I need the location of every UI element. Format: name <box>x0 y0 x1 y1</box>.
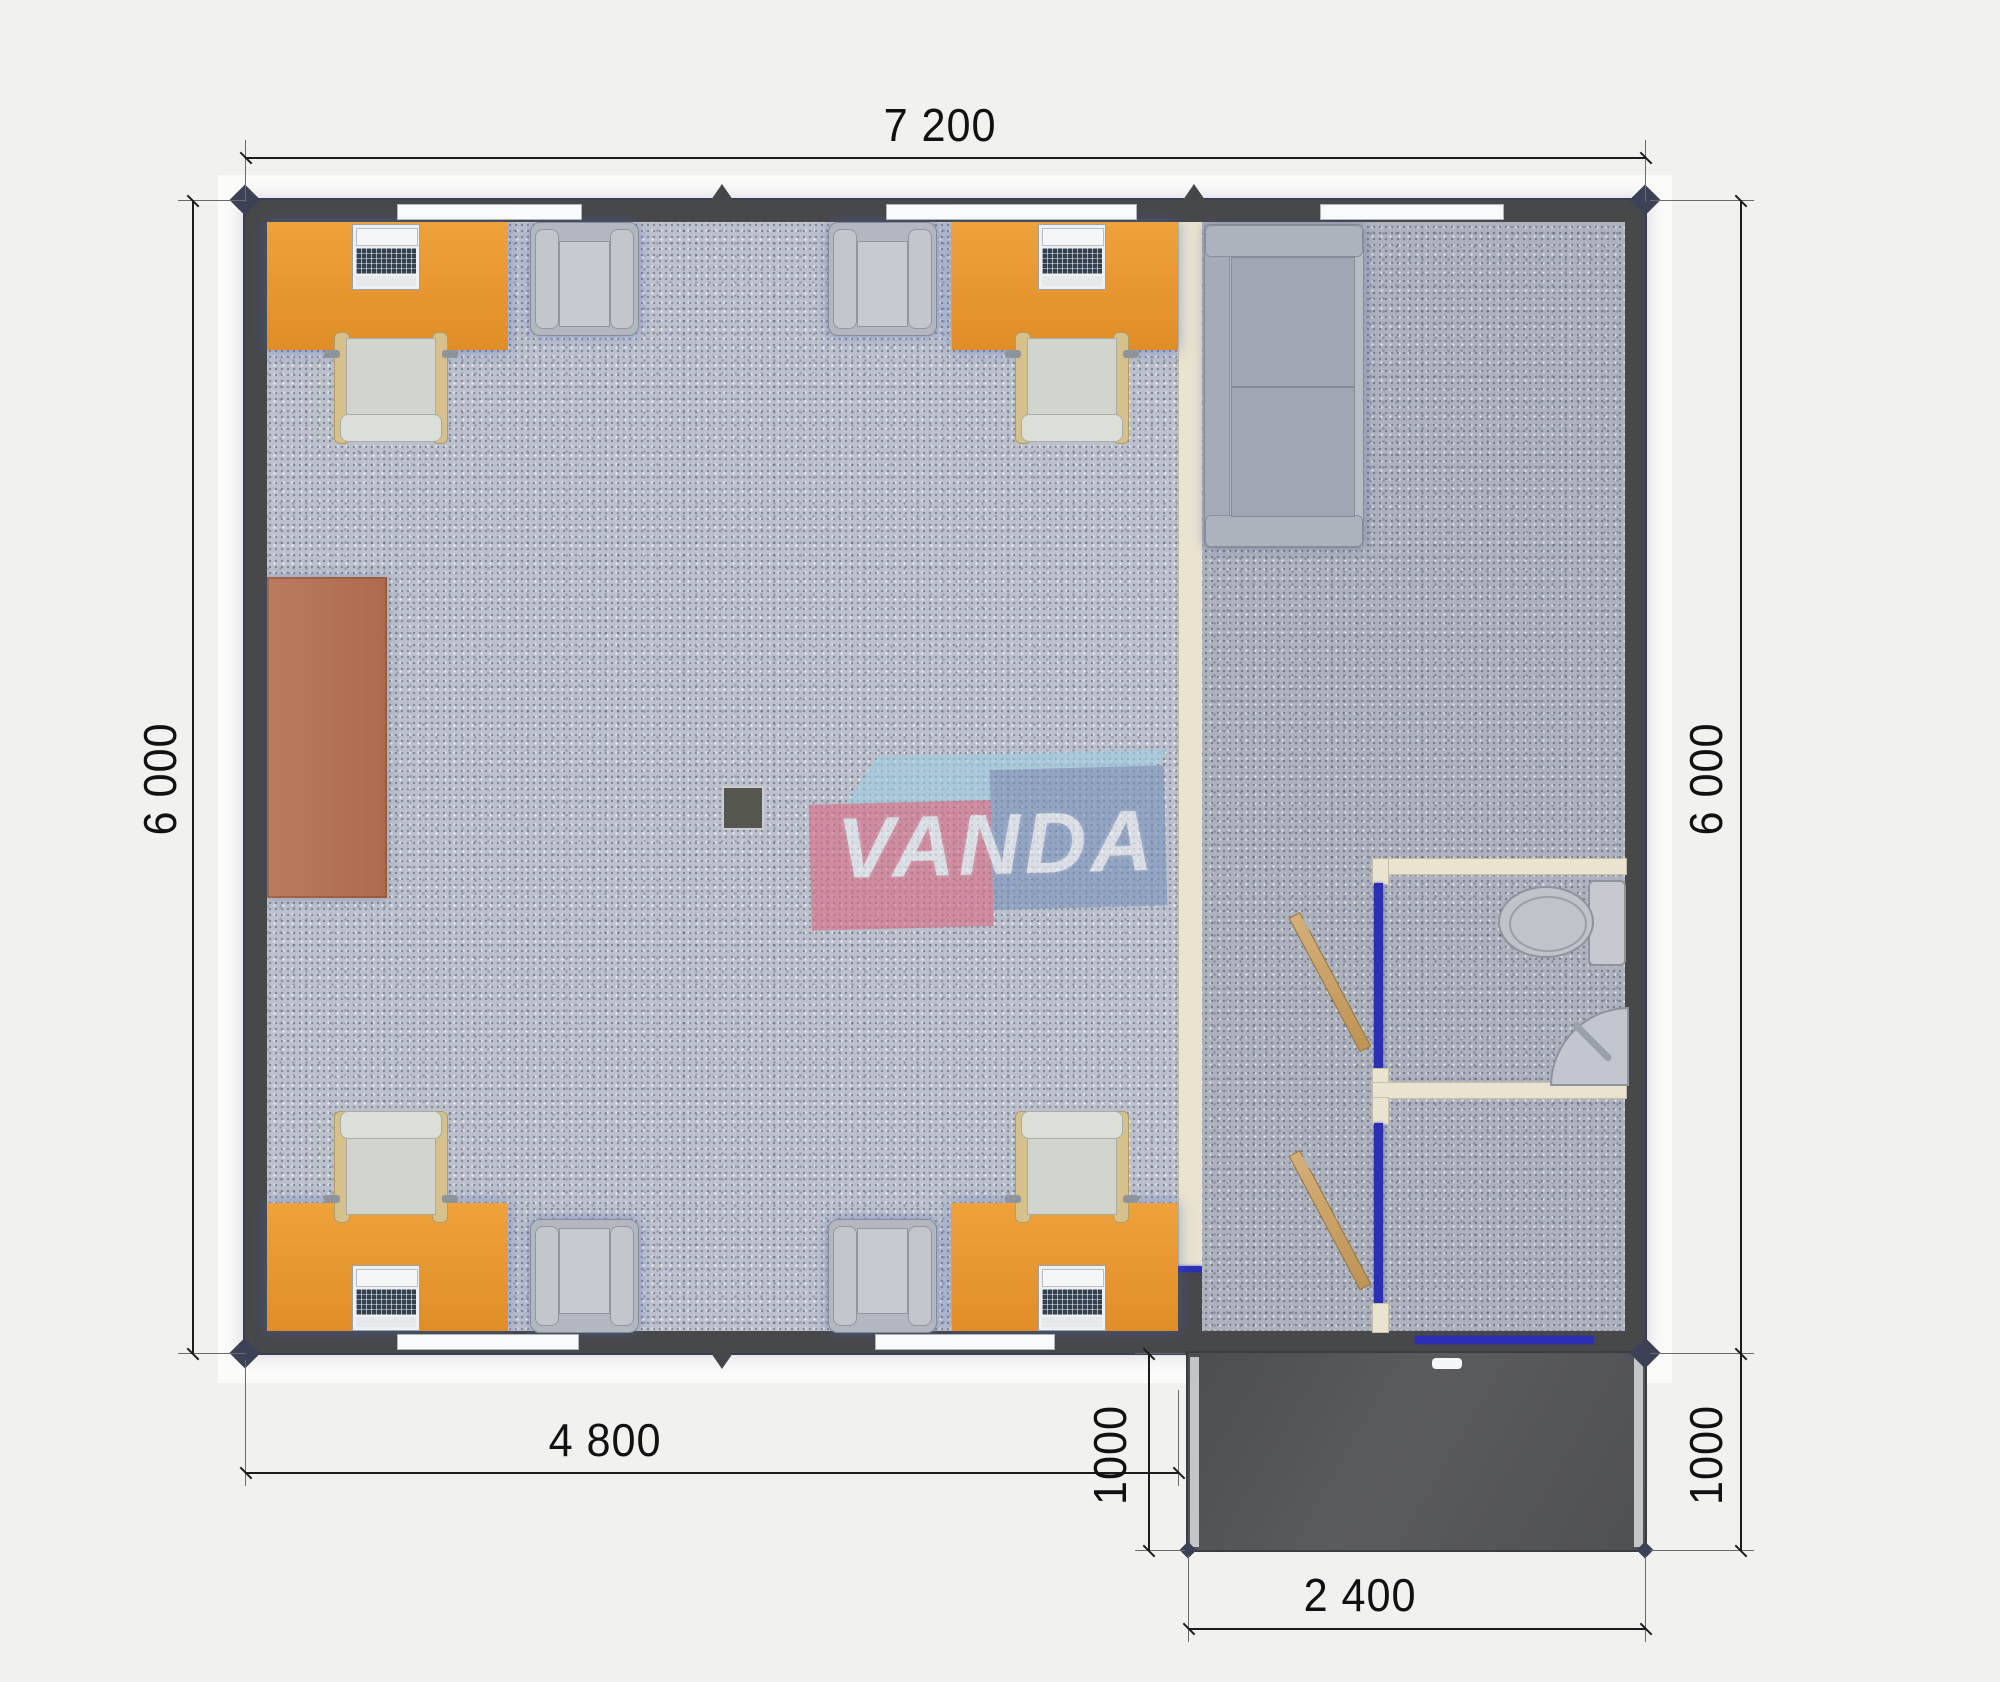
armchair-arm <box>535 1226 559 1326</box>
laptop-keyboard <box>356 1289 417 1315</box>
laptop-palmrest <box>356 1317 417 1327</box>
dimension-line-left <box>192 200 194 1353</box>
dimension-line-porch-right <box>1740 1353 1742 1550</box>
dimension-line-porch-bottom <box>1188 1628 1645 1630</box>
chair-wheel <box>1005 350 1021 358</box>
sofa-arm <box>1205 225 1363 257</box>
vestibule-door-frame <box>1374 1123 1383 1303</box>
window-top-3 <box>1320 204 1504 220</box>
laptop-keyboard <box>356 248 417 274</box>
sofa-arm <box>1205 515 1363 547</box>
armchair-seat <box>857 241 908 327</box>
sofa-backrest <box>1205 225 1230 547</box>
laptop-palmrest <box>1042 276 1103 286</box>
sideboard-cabinet <box>267 577 387 898</box>
extension-line <box>1135 1550 1185 1551</box>
porch <box>1188 1353 1645 1550</box>
partition-wall <box>1178 222 1204 1270</box>
dimension-porch-width: 2 400 <box>1304 1568 1417 1622</box>
chair-backrest <box>1021 414 1123 442</box>
laptop-icon <box>352 1265 420 1331</box>
sofa-cushion <box>1231 387 1355 517</box>
dimension-line-top <box>245 157 1645 159</box>
laptop-lid <box>356 1269 419 1288</box>
armchair-arm <box>833 1226 857 1326</box>
armchair-arm <box>610 229 634 329</box>
entry-door-frame <box>1415 1336 1594 1344</box>
office-chair-top-left <box>334 332 448 442</box>
toilet-icon <box>1498 886 1594 958</box>
dimension-top-width: 7 200 <box>884 98 997 152</box>
laptop-lid <box>1042 228 1105 247</box>
laptop-icon <box>352 224 420 290</box>
armchair-seat <box>559 241 610 327</box>
vanda-watermark: VANDA <box>799 743 1184 963</box>
armchair-arm <box>908 1226 932 1326</box>
armchair-arm <box>833 229 857 329</box>
armchair-arm <box>535 229 559 329</box>
extension-line <box>178 1353 246 1354</box>
sofa <box>1204 224 1364 548</box>
bathroom-top-wall <box>1372 858 1627 875</box>
window-top-2 <box>886 204 1137 220</box>
armchair-arm <box>610 1226 634 1326</box>
chair-backrest <box>340 414 442 442</box>
dimension-porch-depth-right: 1000 <box>1679 1389 1733 1521</box>
armchair-top-1 <box>530 222 639 336</box>
bathroom-door-frame <box>1374 883 1383 1068</box>
dimension-line-porch-left <box>1148 1353 1150 1550</box>
window-top-1 <box>397 204 582 220</box>
module-joint-mark-top-1 <box>711 184 733 200</box>
dimension-right-height: 6 000 <box>1679 713 1733 845</box>
extension-line <box>1645 140 1646 202</box>
partition-door-jamb <box>1178 1266 1202 1272</box>
vestibule-left-wall-upper <box>1372 1097 1389 1125</box>
entry-door-handle <box>1432 1358 1462 1369</box>
porch-edge-left <box>1190 1357 1199 1547</box>
dimension-line-right <box>1740 200 1742 1353</box>
chair-backrest <box>340 1111 442 1139</box>
laptop-palmrest <box>1042 1317 1103 1327</box>
laptop-lid <box>1042 1269 1105 1288</box>
dimension-porch-depth-left: 1000 <box>1083 1389 1137 1521</box>
laptop-icon <box>1038 224 1106 290</box>
office-chair-bottom-left <box>334 1111 448 1221</box>
extension-line <box>178 200 246 201</box>
office-chair-top-right <box>1015 332 1129 442</box>
chair-wheel <box>324 1195 340 1203</box>
porch-edge-right <box>1634 1357 1643 1547</box>
office-chair-bottom-right <box>1015 1111 1129 1221</box>
armchair-seat <box>857 1228 908 1314</box>
laptop-lid <box>356 228 419 247</box>
dimension-bottom-width: 4 800 <box>549 1413 662 1467</box>
armchair-bottom-1 <box>530 1219 639 1333</box>
extension-line <box>245 140 246 202</box>
chair-wheel <box>324 350 340 358</box>
bathroom-left-wall-upper <box>1372 858 1389 885</box>
laptop-keyboard <box>1042 1289 1103 1315</box>
armchair-top-2 <box>828 222 937 336</box>
window-bottom-2 <box>875 1334 1055 1350</box>
dimension-left-height: 6 000 <box>133 713 187 845</box>
dimension-line-bottom <box>245 1472 1178 1474</box>
armchair-arm <box>908 229 932 329</box>
chair-wheel <box>1005 1195 1021 1203</box>
laptop-keyboard <box>1042 248 1103 274</box>
armchair-seat <box>559 1228 610 1314</box>
laptop-icon <box>1038 1265 1106 1331</box>
chair-backrest <box>1021 1111 1123 1139</box>
floor-plan-canvas: VANDA 7 200 6 000 6 000 4 800 1000 1000 … <box>0 0 2000 1682</box>
module-joint-mark-top-2 <box>1183 184 1205 200</box>
chair-wheel <box>442 350 458 358</box>
module-joint-mark-bottom <box>711 1353 733 1369</box>
laptop-palmrest <box>356 276 417 286</box>
vestibule-left-wall-lower <box>1372 1303 1389 1333</box>
chair-wheel <box>1123 1195 1139 1203</box>
logo-text: VANDA <box>831 792 1163 900</box>
chair-wheel <box>1123 350 1139 358</box>
extension-line <box>245 1360 246 1486</box>
armchair-bottom-2 <box>828 1219 937 1333</box>
chair-wheel <box>442 1195 458 1203</box>
floor-stove-box <box>722 786 764 830</box>
window-bottom-1 <box>397 1334 579 1350</box>
sofa-cushion <box>1231 257 1355 387</box>
extension-line <box>1135 1353 1185 1354</box>
